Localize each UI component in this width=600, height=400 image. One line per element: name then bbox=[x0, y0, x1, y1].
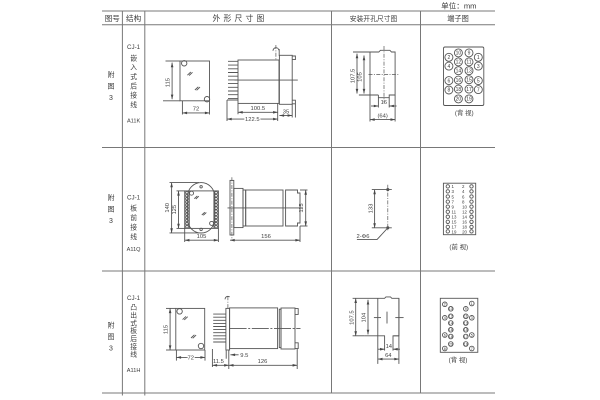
svg-text:CJ-1: CJ-1 bbox=[127, 295, 141, 302]
svg-text:11: 11 bbox=[464, 315, 468, 319]
svg-text:18: 18 bbox=[449, 335, 453, 339]
svg-text:9: 9 bbox=[468, 51, 471, 57]
svg-text:板: 板 bbox=[130, 204, 137, 213]
svg-text:图号: 图号 bbox=[105, 14, 121, 23]
svg-text:115: 115 bbox=[164, 325, 170, 334]
svg-text:式: 式 bbox=[130, 72, 137, 81]
svg-text:100.5: 100.5 bbox=[251, 106, 266, 112]
svg-text:出: 出 bbox=[130, 311, 137, 320]
svg-text:附: 附 bbox=[108, 193, 115, 202]
svg-text:3: 3 bbox=[109, 218, 113, 225]
svg-text:3: 3 bbox=[477, 64, 480, 70]
svg-text:附: 附 bbox=[108, 70, 115, 79]
svg-text:后: 后 bbox=[130, 334, 137, 343]
svg-text:结构: 结构 bbox=[126, 13, 142, 23]
svg-text:10: 10 bbox=[449, 307, 453, 311]
svg-text:105: 105 bbox=[197, 234, 207, 240]
svg-text:16: 16 bbox=[456, 78, 462, 84]
svg-text:8: 8 bbox=[448, 88, 451, 94]
svg-text:接: 接 bbox=[130, 342, 137, 351]
svg-text:156: 156 bbox=[261, 234, 271, 240]
svg-text:17: 17 bbox=[466, 87, 472, 93]
svg-text:10: 10 bbox=[456, 51, 462, 57]
svg-text:(前 视): (前 视) bbox=[449, 242, 468, 251]
svg-text:15: 15 bbox=[464, 328, 468, 332]
svg-text:16: 16 bbox=[449, 328, 453, 332]
svg-text:安装开孔尺寸图: 安装开孔尺寸图 bbox=[350, 14, 398, 23]
svg-text:133: 133 bbox=[368, 204, 374, 214]
svg-text:图: 图 bbox=[108, 333, 115, 341]
svg-text:线: 线 bbox=[130, 350, 137, 359]
svg-text:后: 后 bbox=[130, 81, 137, 90]
svg-text:122.5: 122.5 bbox=[245, 117, 260, 123]
svg-text:7: 7 bbox=[477, 87, 480, 93]
svg-text:14: 14 bbox=[386, 344, 393, 350]
svg-text:8: 8 bbox=[444, 347, 446, 351]
svg-text:9.5: 9.5 bbox=[240, 353, 248, 359]
svg-text:125: 125 bbox=[172, 205, 178, 215]
svg-text:5: 5 bbox=[471, 333, 473, 337]
svg-text:64: 64 bbox=[385, 353, 392, 359]
svg-text:嵌: 嵌 bbox=[130, 54, 137, 62]
svg-text:3: 3 bbox=[109, 95, 113, 102]
svg-text:115: 115 bbox=[165, 78, 171, 87]
svg-text:线: 线 bbox=[130, 100, 137, 109]
svg-text:20: 20 bbox=[462, 229, 467, 234]
svg-text:14: 14 bbox=[456, 68, 462, 74]
svg-text:107.5: 107.5 bbox=[350, 69, 356, 84]
svg-text:19: 19 bbox=[466, 97, 472, 103]
svg-text:(背 视): (背 视) bbox=[455, 108, 474, 117]
svg-text:12: 12 bbox=[449, 315, 453, 319]
svg-text:3: 3 bbox=[471, 316, 473, 320]
svg-text:接: 接 bbox=[130, 222, 137, 231]
svg-text:CJ-1: CJ-1 bbox=[127, 44, 141, 51]
svg-text:12: 12 bbox=[456, 60, 462, 66]
svg-text:前: 前 bbox=[130, 213, 137, 222]
svg-text:端子图: 端子图 bbox=[447, 14, 469, 23]
svg-text:19: 19 bbox=[452, 229, 457, 234]
svg-text:2: 2 bbox=[444, 303, 446, 307]
svg-text:11.5: 11.5 bbox=[213, 359, 224, 365]
svg-text:凸: 凸 bbox=[130, 304, 137, 312]
svg-text:5: 5 bbox=[477, 78, 480, 84]
svg-text:1: 1 bbox=[471, 302, 473, 306]
svg-text:A11K: A11K bbox=[127, 118, 141, 124]
svg-text:A11H: A11H bbox=[127, 368, 141, 374]
svg-text:13: 13 bbox=[466, 68, 472, 74]
svg-text:16: 16 bbox=[381, 100, 387, 106]
svg-text:7: 7 bbox=[471, 347, 473, 351]
svg-text:126: 126 bbox=[258, 359, 268, 365]
svg-text:115: 115 bbox=[299, 203, 305, 212]
svg-text:附: 附 bbox=[108, 321, 115, 330]
svg-text:4: 4 bbox=[448, 64, 451, 70]
svg-text:(64): (64) bbox=[377, 114, 387, 120]
svg-text:2: 2 bbox=[448, 55, 451, 61]
svg-text:A11Q: A11Q bbox=[127, 247, 142, 253]
svg-text:104: 104 bbox=[362, 312, 368, 322]
svg-text:72: 72 bbox=[193, 107, 199, 113]
svg-text:单位：mm: 单位：mm bbox=[441, 1, 476, 11]
svg-text:9: 9 bbox=[465, 307, 467, 311]
svg-text:线: 线 bbox=[130, 232, 137, 241]
svg-text:式: 式 bbox=[130, 318, 137, 327]
svg-text:板: 板 bbox=[130, 326, 137, 335]
svg-text:13: 13 bbox=[464, 321, 468, 325]
svg-text:18: 18 bbox=[456, 87, 462, 93]
svg-text:1: 1 bbox=[477, 55, 480, 61]
svg-text:11: 11 bbox=[466, 60, 471, 66]
svg-text:入: 入 bbox=[130, 64, 137, 72]
svg-text:20: 20 bbox=[456, 97, 462, 103]
svg-text:3: 3 bbox=[109, 346, 113, 353]
svg-text:2-Φ6: 2-Φ6 bbox=[357, 234, 370, 240]
svg-text:20: 20 bbox=[449, 342, 453, 346]
svg-text:14: 14 bbox=[449, 321, 453, 325]
svg-text:15: 15 bbox=[466, 77, 472, 83]
svg-text:图: 图 bbox=[108, 83, 115, 91]
svg-text:19: 19 bbox=[464, 342, 468, 346]
svg-text:140: 140 bbox=[165, 203, 171, 213]
svg-text:(背 视): (背 视) bbox=[449, 355, 468, 364]
svg-text:107.5: 107.5 bbox=[349, 310, 355, 325]
svg-text:6: 6 bbox=[444, 333, 446, 337]
svg-text:外形尺寸图: 外形尺寸图 bbox=[213, 13, 268, 23]
svg-text:接: 接 bbox=[130, 91, 137, 100]
svg-text:72: 72 bbox=[187, 355, 193, 361]
svg-text:17: 17 bbox=[464, 335, 468, 339]
svg-text:CJ-1: CJ-1 bbox=[127, 194, 141, 201]
svg-text:35: 35 bbox=[283, 110, 289, 116]
svg-text:图: 图 bbox=[108, 206, 115, 214]
svg-text:4: 4 bbox=[444, 316, 446, 320]
svg-text:6: 6 bbox=[448, 78, 451, 84]
svg-text:105: 105 bbox=[358, 72, 364, 82]
